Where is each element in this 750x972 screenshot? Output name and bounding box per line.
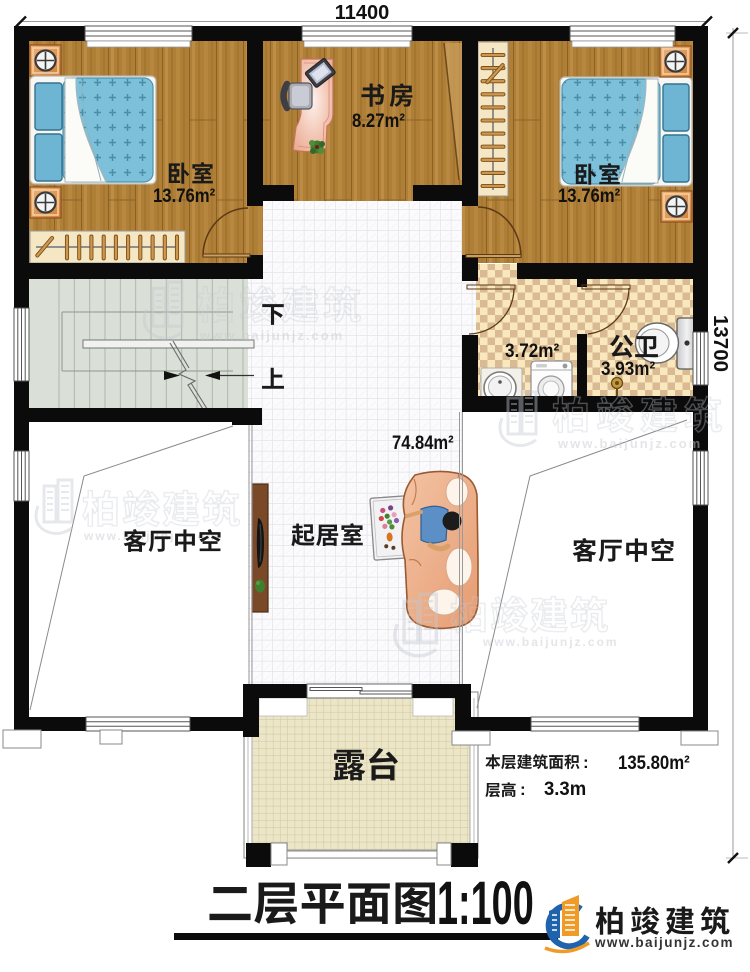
- svg-text:3.3m: 3.3m: [544, 779, 586, 801]
- svg-text:1:100: 1:100: [437, 869, 534, 938]
- svg-text:74.84m²: 74.84m²: [392, 432, 454, 454]
- svg-text:3.72m²: 3.72m²: [505, 340, 559, 361]
- svg-text:8.27m²: 8.27m²: [352, 110, 405, 131]
- svg-text:13700: 13700: [709, 315, 732, 372]
- svg-text:www.baijunjz.com: www.baijunjz.com: [199, 328, 344, 343]
- svg-text:135.80m²: 135.80m²: [618, 752, 690, 773]
- svg-text::: :: [583, 753, 589, 772]
- svg-text:www.baijunjz.com: www.baijunjz.com: [557, 436, 702, 451]
- svg-text::: :: [520, 780, 526, 799]
- svg-text:13.76m²: 13.76m²: [558, 185, 620, 206]
- svg-text:www.baijunjz.com: www.baijunjz.com: [594, 935, 734, 950]
- svg-text:13.76m²: 13.76m²: [153, 185, 215, 206]
- svg-text:11400: 11400: [335, 2, 390, 24]
- svg-text:3.93m²: 3.93m²: [601, 358, 655, 379]
- svg-text:www.baijunjz.com: www.baijunjz.com: [482, 635, 619, 649]
